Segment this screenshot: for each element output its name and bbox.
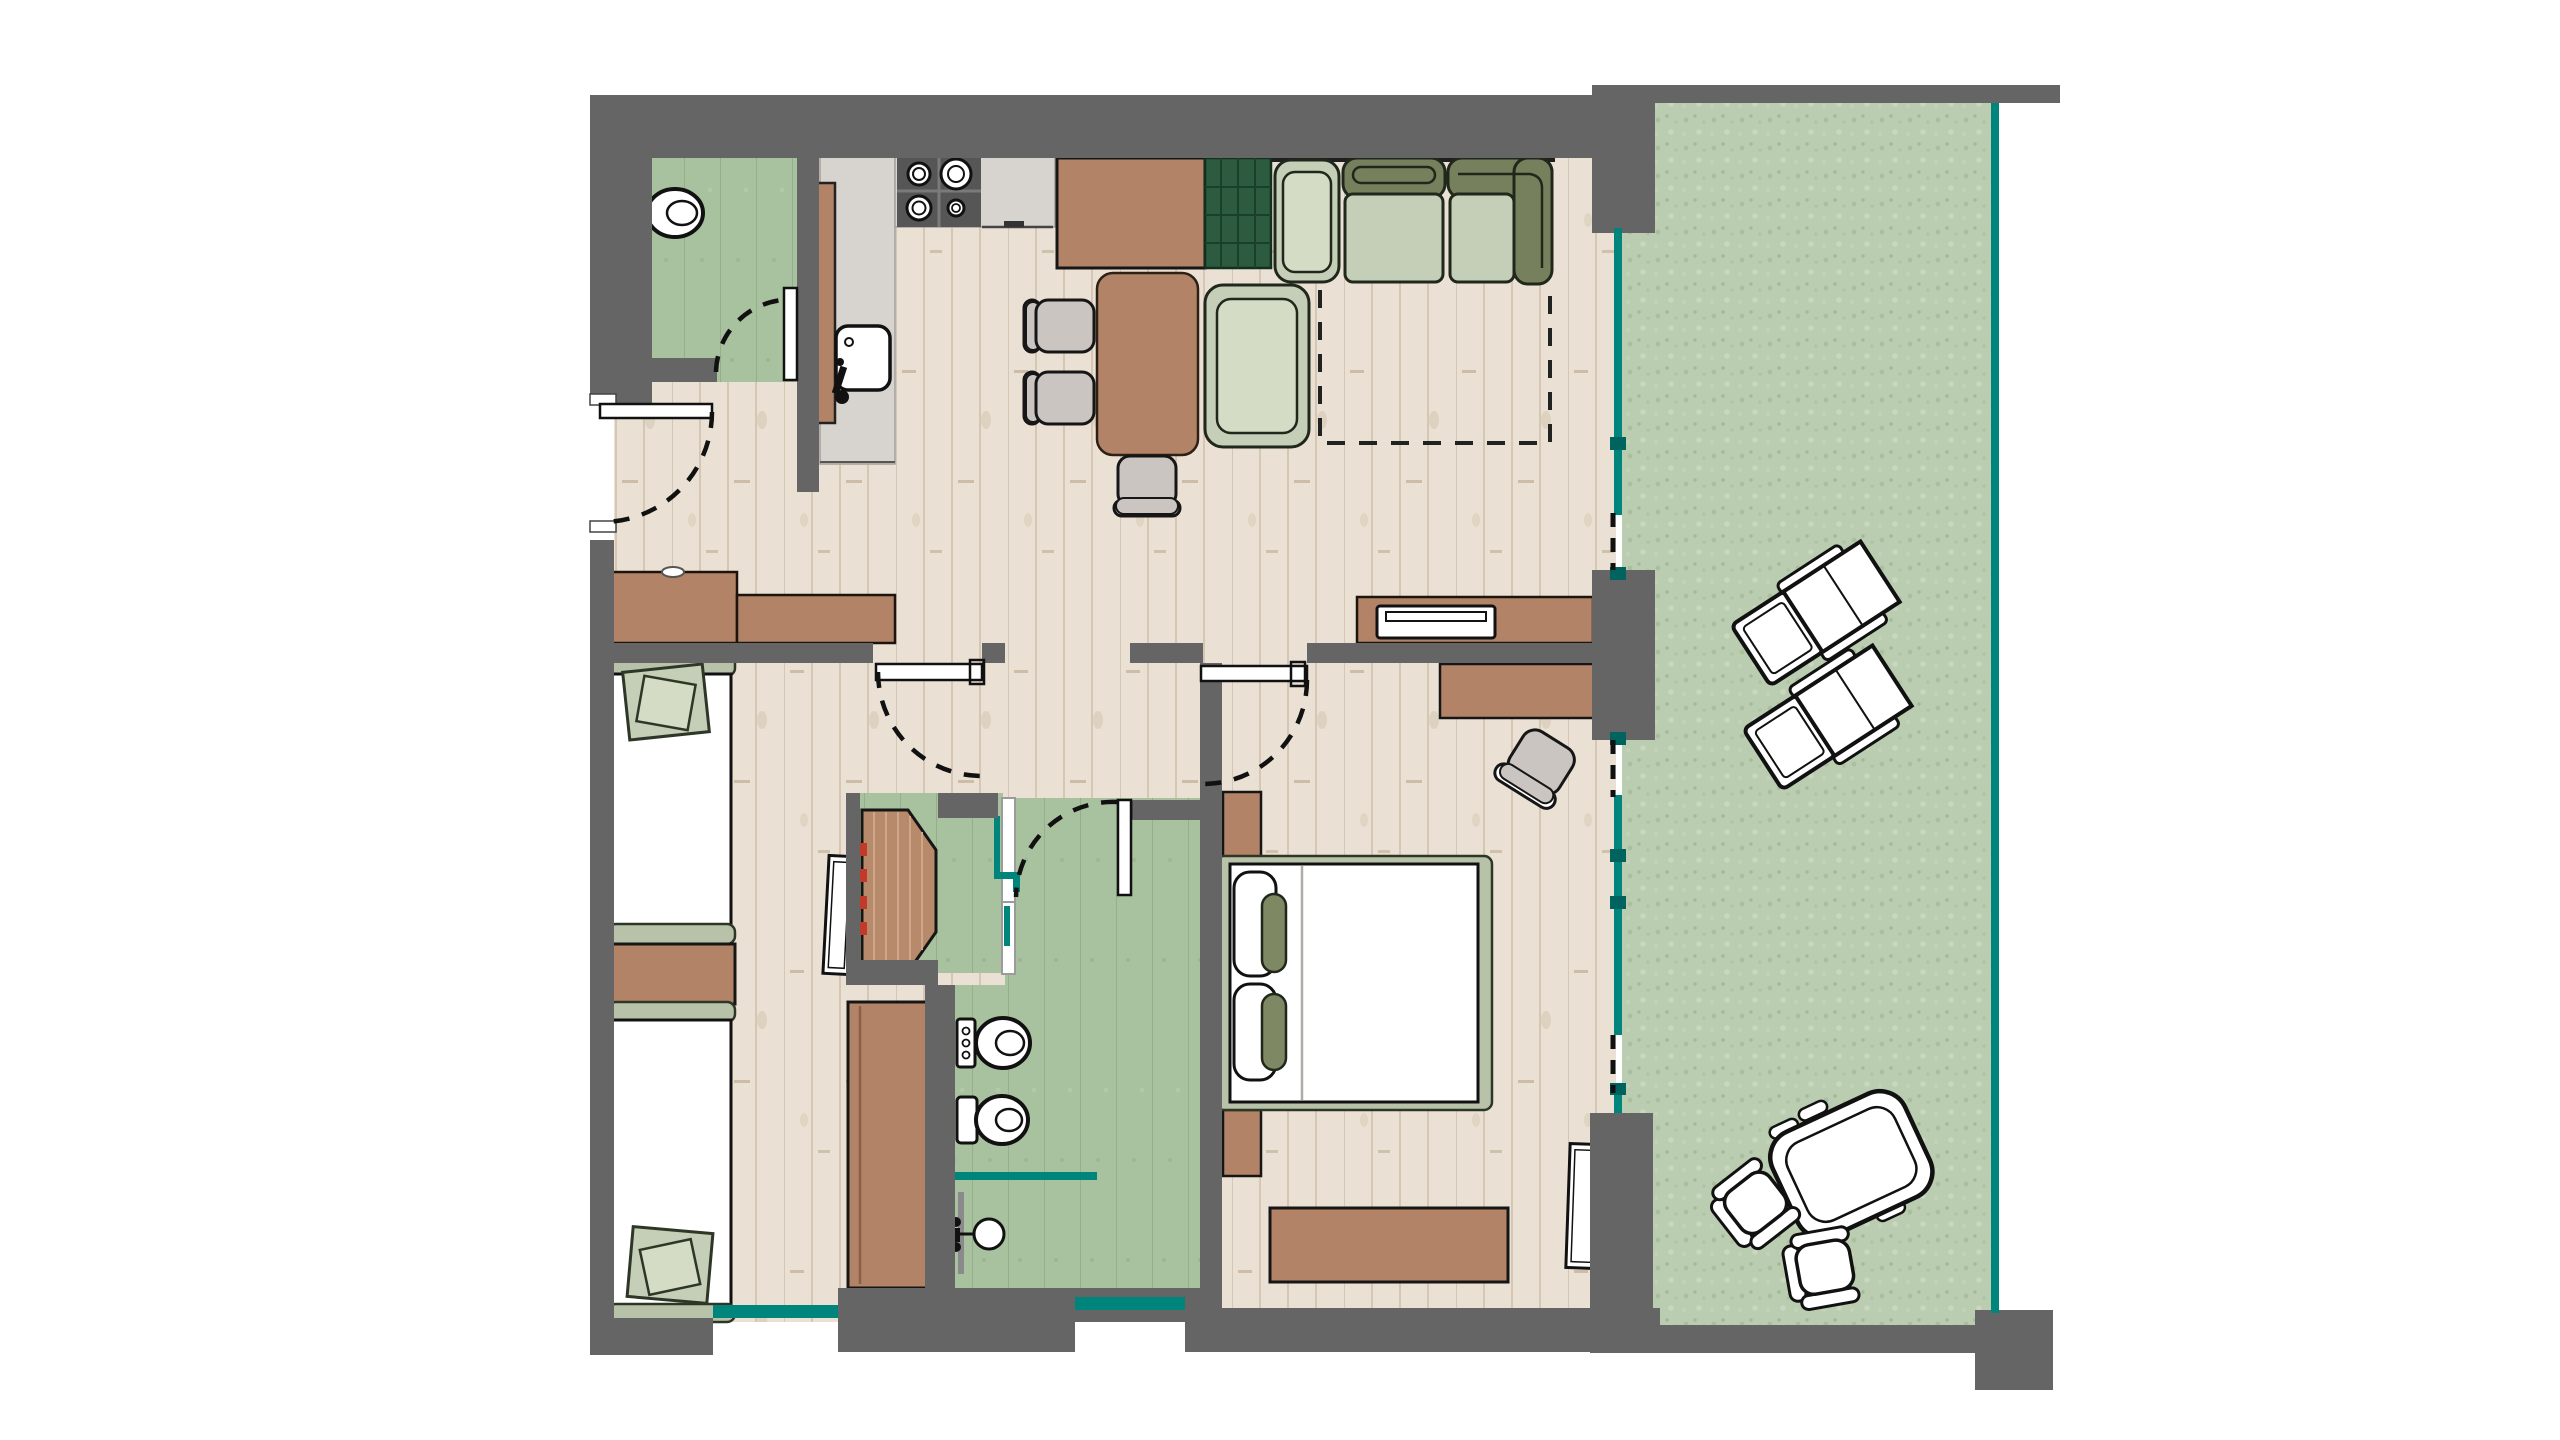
bath-bidet-bowl: [976, 1096, 1028, 1144]
wall-south-bedroom1: [590, 1318, 713, 1355]
sauna-partition-glass: [1004, 906, 1010, 946]
bath-toilet-button-1: [963, 1028, 970, 1035]
sofa-module-a-seat: [1345, 194, 1443, 282]
kitchen-counter-handle: [1004, 221, 1024, 227]
kitchen-faucet-base: [835, 390, 849, 404]
wall-south-bath-step-b: [1185, 1322, 1222, 1352]
bed1-pillow-inner: [636, 676, 695, 730]
wall-mid-a: [608, 643, 873, 663]
shower-head: [974, 1219, 1004, 1249]
glass-mullion-1: [1610, 437, 1626, 450]
bedroom1-nightstand: [608, 944, 735, 1004]
dining-table: [1097, 273, 1198, 455]
armchair-north-cushion: [1283, 172, 1331, 272]
wall-east-block: [1592, 570, 1655, 740]
terrace-chair-b: [1780, 1226, 1860, 1313]
wall-wc-east: [797, 152, 819, 492]
bedroom2-nightstand-a: [1223, 792, 1261, 858]
bathroom-door-leaf: [1118, 800, 1131, 895]
dining-chair-west-b: [1024, 372, 1094, 424]
chair-back: [1116, 498, 1178, 514]
bath-toilet-button-2: [963, 1040, 970, 1047]
window-bedroom1: [713, 1305, 838, 1318]
bedroom2-nightstand-b: [1223, 1110, 1261, 1176]
glass-mullion-4: [1610, 849, 1626, 862]
glass-east-mid: [1614, 450, 1622, 515]
wall-terrace-column: [1592, 85, 1655, 233]
wc-toilet-bowl: [647, 189, 703, 237]
bath-toilet-button-3: [963, 1052, 970, 1059]
kitchen-sink: [836, 326, 890, 390]
glass-mullion-5: [1610, 896, 1626, 909]
wall-mid-d: [1307, 643, 1592, 663]
wall-top-main: [590, 95, 1592, 158]
sauna-glass-door: [994, 816, 1000, 878]
wall-terrace-south: [1653, 1325, 1979, 1353]
glass-east-lower-b: [1614, 1093, 1622, 1113]
floor-bathroom-upper: [1005, 798, 1200, 990]
floor-wc: [652, 152, 797, 382]
chair-seat: [1794, 1238, 1856, 1297]
bedroom2-console: [1440, 664, 1595, 718]
hall-sideboard-b: [737, 595, 895, 643]
kitchen-faucet-head: [836, 358, 844, 366]
entrance-jamb-bottom: [590, 521, 616, 532]
entrance-door-leaf: [600, 404, 712, 418]
burner-2-inner: [948, 166, 964, 182]
sofa-module-a-back: [1343, 158, 1445, 198]
bedroom1-door-leaf: [876, 664, 982, 680]
chair-seat: [1036, 372, 1094, 424]
floor-plan-stage: [0, 0, 2560, 1440]
plan-layers: [590, 85, 2060, 1390]
dining-chair-west-a: [1024, 300, 1094, 352]
wall-mid-b: [982, 643, 1005, 663]
burner-4-inner: [952, 204, 960, 212]
wall-bedroom2-east: [1590, 1113, 1653, 1353]
wall-mid-c: [1130, 643, 1203, 663]
wall-wc-south: [652, 358, 717, 382]
bed1-foot-rail: [608, 924, 735, 944]
burner-1-inner: [913, 168, 925, 180]
double-bed-bolster-a: [1262, 894, 1286, 972]
double-bed-bolster-b: [1262, 994, 1286, 1070]
shower-screen: [955, 1172, 1097, 1180]
dining-chair-south: [1114, 456, 1180, 516]
glass-terrace-right: [1991, 103, 1999, 1313]
chair-seat: [1036, 300, 1094, 352]
glass-east-lower: [1614, 795, 1622, 1035]
wall-terrace-pillar: [1975, 1310, 2053, 1390]
wall-sauna-west: [846, 793, 860, 973]
wall-left-upper: [590, 95, 652, 405]
wall-south-bath-step-a: [838, 1322, 1075, 1352]
wall-top-terrace: [1592, 85, 2060, 103]
sofa-module-b-seat: [1450, 194, 1514, 282]
wall-corridor-east: [1200, 663, 1222, 1352]
window-bathroom: [1075, 1297, 1185, 1310]
hall-wardrobe: [1057, 158, 1205, 268]
bedroom2-bench: [1270, 1208, 1508, 1282]
page: { "meta": { "kind": "apartment-floor-pla…: [0, 0, 2560, 1440]
glass-east-upper: [1614, 228, 1622, 440]
wall-bath-north: [1128, 800, 1203, 820]
sofa-module-b-back-right: [1514, 158, 1552, 284]
wc-door-leaf: [784, 288, 797, 380]
burner-3-inner: [913, 202, 926, 215]
apartment-floor-plan: [0, 0, 2560, 1440]
wall-bath-west: [925, 985, 955, 1288]
wall-sauna-south: [846, 960, 938, 985]
bed2-pillow-inner: [640, 1239, 700, 1295]
hall-sideboard-dish: [662, 567, 684, 577]
kitchen-sink-drain: [845, 338, 853, 346]
hall-sideboard-a: [610, 572, 737, 643]
wall-sauna-top: [938, 793, 998, 818]
bath-toilet-bowl: [976, 1018, 1030, 1068]
armchair-east-cushion: [1217, 299, 1297, 433]
